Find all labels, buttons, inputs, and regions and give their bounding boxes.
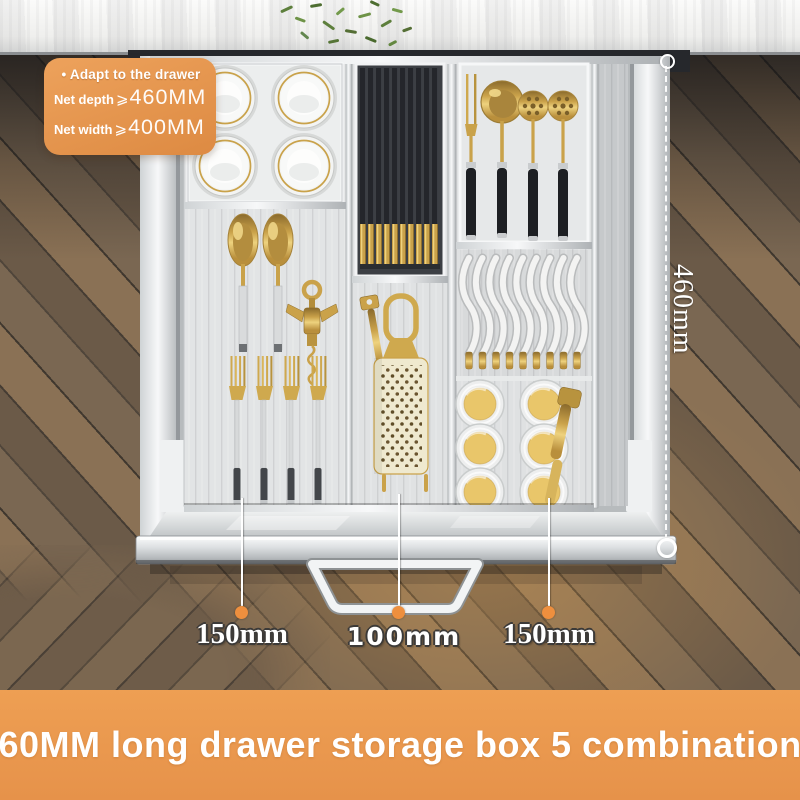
chopsticks [360,68,440,269]
gte-icon: ⩾ [116,88,129,112]
product-image: • Adapt to the drawer Net depth ⩾ 460MM … [0,0,800,800]
depth-label: 460mm [666,264,698,355]
spec-badge-title: • Adapt to the drawer [54,67,208,82]
measure-ring-icon [660,54,675,69]
bullet-icon: • [62,67,67,82]
spec-row-depth: Net depth ⩾ 460MM [54,85,208,112]
measure-dot-icon [392,606,405,619]
measure-line-right [548,498,550,606]
spec-badge: • Adapt to the drawer Net depth ⩾ 460MM … [44,58,216,155]
spec-row-width: Net width ⩾ 400MM [54,115,208,142]
compartment-label-left: 150mm [167,618,317,651]
title-banner: 460MM long drawer storage box 5 combinat… [0,690,800,800]
compartment-label-right: 150mm [474,618,624,651]
measure-line-left [241,498,243,606]
compartment-label-middle: 100mm [329,622,479,651]
banner-text: 460MM long drawer storage box 5 combinat… [0,724,800,766]
drawer-front [136,503,676,584]
measure-line-middle [398,494,400,606]
gte-icon: ⩾ [115,118,128,142]
measure-ring-icon [657,538,677,558]
